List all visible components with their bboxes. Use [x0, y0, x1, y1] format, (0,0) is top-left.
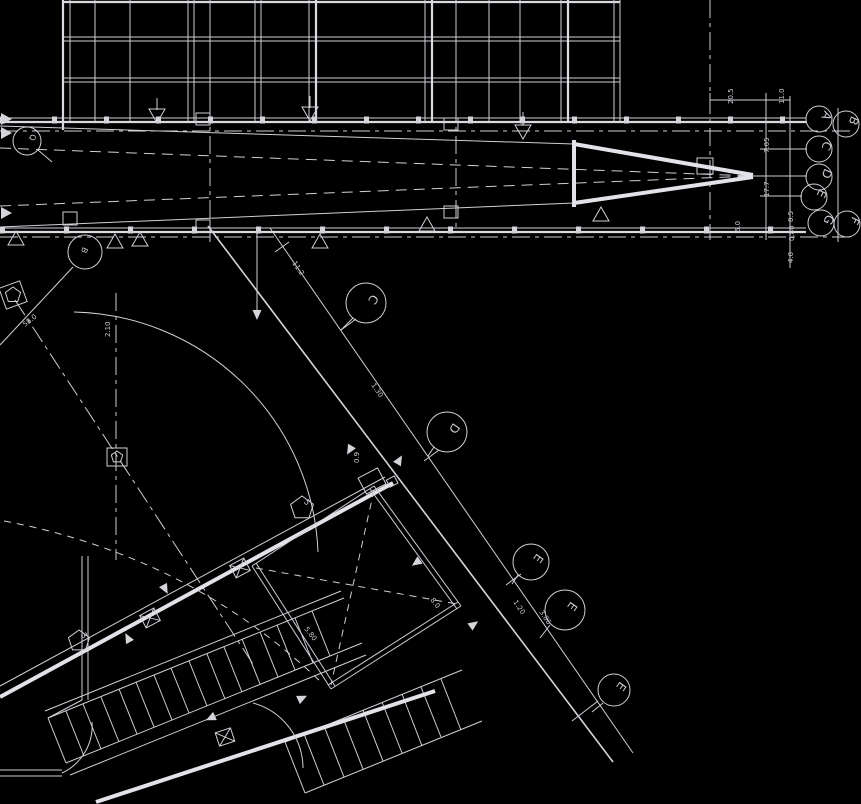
dim-text: 11.2	[290, 260, 305, 277]
x-column	[215, 728, 235, 746]
grid-bubble-C-label: C	[819, 139, 835, 153]
dim-text: 1.30	[369, 382, 384, 399]
dim-text: 8.0	[428, 596, 441, 610]
grid-bubble-diag-E3-label: E	[613, 679, 629, 693]
svg-text:5: 5	[302, 498, 312, 508]
keynote-pentagon-box	[0, 281, 27, 309]
detail-bubble-B-label: B	[79, 246, 89, 255]
floor-plan-drawing: 20.5 11.0 7.05 17.7 8.5 5.0 0.80 4.0 A B…	[0, 0, 861, 804]
grid-bubble-B-label: B	[846, 114, 861, 127]
dim-text: 11.0	[778, 88, 786, 104]
dim-text: 5.80	[302, 625, 318, 642]
grid-node-box	[196, 220, 210, 232]
grid-bubble-F-label: F	[847, 215, 861, 227]
grid-bubble-diag-E2-label: E	[564, 599, 580, 613]
grid-bubble-D-label: D	[818, 167, 835, 181]
detail-bubble-Q-label: Q	[27, 134, 37, 142]
grid-bubble-E-label: E	[814, 187, 830, 200]
dim-text: 58.0	[21, 313, 38, 329]
dim-text: 8.5	[787, 211, 795, 222]
dim-text: 0.9	[353, 452, 361, 463]
dim-text: 5.0	[734, 221, 742, 232]
tapered-beam-outline	[0, 126, 807, 227]
cad-drawing-canvas: 20.5 11.0 7.05 17.7 8.5 5.0 0.80 4.0 A B…	[0, 0, 861, 804]
grid-bubble-diag-D-label: D	[446, 420, 463, 436]
dim-text: 7.05	[763, 137, 771, 153]
door-swing-arc-dashed	[4, 521, 322, 683]
curtain-wall-grid	[62, 0, 620, 130]
dim-text: 4.0	[787, 252, 795, 263]
survey-triangle-markers	[8, 96, 609, 248]
keynote-5: 5	[291, 496, 314, 518]
dim-text: 17.7	[763, 181, 771, 197]
grid-bubbles-right: A B C D E G F	[801, 106, 861, 237]
right-dimension-group: 20.5 11.0 7.05 17.7 8.5 5.0 0.80 4.0	[710, 88, 807, 268]
stair-flight-1	[45, 591, 366, 775]
dim-text: 0.80	[788, 225, 796, 241]
door-swing-arc	[74, 312, 318, 552]
door-swing-arc-small	[62, 722, 92, 773]
dim-text: 20.5	[727, 88, 735, 104]
diagonal-grid-corridor: 11.2 1.30 1.20 3.86 C D E E E	[208, 226, 633, 762]
lower-plan: 0.9 5.80 8.0	[0, 444, 482, 802]
grid-bubble-diag-C-label: C	[365, 292, 381, 307]
keynote-3: 3	[69, 630, 90, 650]
grid-node-box	[63, 212, 77, 225]
grid-bubble-diag-E1-label: E	[530, 551, 546, 565]
dim-text: 2.10	[104, 321, 112, 337]
column-marker	[107, 448, 127, 466]
dim-text: 1.20	[511, 599, 526, 616]
grid-node-box	[196, 113, 210, 125]
grid-bubble-A-label: A	[818, 109, 834, 123]
